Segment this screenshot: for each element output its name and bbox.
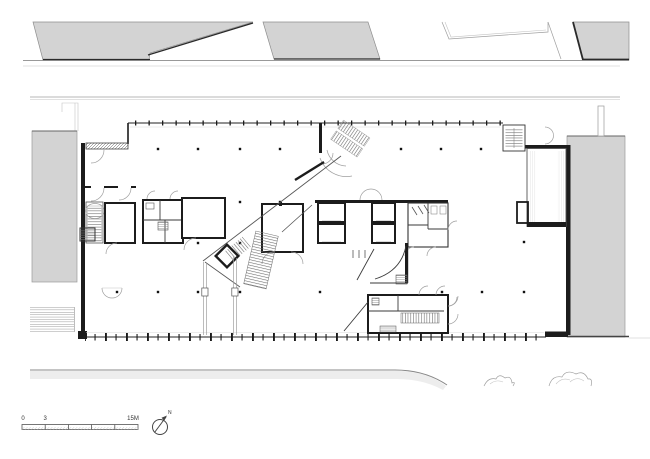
canopy-arc bbox=[102, 288, 122, 298]
scale-bar: 0 3 15M bbox=[21, 416, 139, 430]
adjacent-building-left-mass bbox=[32, 131, 77, 282]
elevator-cell bbox=[372, 224, 395, 243]
floor-plan-drawing: 0 3 15M N bbox=[0, 0, 650, 459]
scale-label-end: 15M bbox=[127, 416, 139, 422]
door-swing bbox=[545, 127, 554, 144]
door-swing bbox=[184, 238, 196, 250]
bush bbox=[549, 372, 592, 386]
shaft-2 bbox=[380, 326, 396, 332]
adjacent-building-right bbox=[567, 106, 650, 338]
core-central bbox=[315, 189, 457, 306]
door-swing bbox=[436, 286, 445, 295]
exterior-steps bbox=[30, 307, 74, 332]
scale-label-mid: 3 bbox=[44, 416, 48, 422]
road-south bbox=[30, 370, 447, 390]
bush-inner bbox=[570, 379, 584, 382]
stair-arc bbox=[327, 150, 346, 166]
wall-spine bbox=[319, 123, 322, 153]
south-facade-columns bbox=[85, 333, 545, 341]
east-wall bbox=[566, 145, 571, 335]
bush-inner bbox=[490, 381, 503, 384]
door-swing bbox=[448, 314, 458, 324]
stair-arc-2 bbox=[320, 158, 352, 177]
terrace-east bbox=[517, 149, 566, 228]
road-band bbox=[30, 371, 446, 390]
floor-plan-sheet: 0 3 15M N bbox=[0, 0, 650, 459]
core-west bbox=[80, 187, 183, 298]
room-west bbox=[105, 203, 135, 243]
stair-edge-lower bbox=[205, 262, 240, 287]
ramp bbox=[202, 256, 238, 335]
wc-block bbox=[405, 203, 457, 306]
door-swing bbox=[291, 252, 303, 264]
door-swing bbox=[119, 188, 131, 200]
stair-northeast bbox=[503, 125, 525, 151]
elevator-cell bbox=[318, 224, 345, 243]
north-facade-mullions bbox=[129, 121, 503, 126]
door-swing bbox=[360, 189, 382, 200]
north-arrow-icon: N bbox=[153, 410, 173, 435]
north-east-wall bbox=[525, 145, 570, 149]
context-building-outline bbox=[442, 22, 561, 59]
adjacent-building-left bbox=[30, 103, 78, 332]
north-label: N bbox=[168, 410, 172, 416]
west-party-wall bbox=[86, 143, 128, 149]
curved-wall-room bbox=[357, 243, 408, 284]
core-west-2 bbox=[143, 191, 183, 243]
door-swing bbox=[448, 296, 458, 306]
stair-north bbox=[331, 120, 370, 157]
stair-atrium bbox=[244, 231, 279, 289]
door-swing bbox=[106, 243, 117, 254]
scale-bar-hatch bbox=[22, 427, 138, 430]
bush-inner bbox=[556, 379, 570, 384]
shaft bbox=[372, 298, 379, 305]
stair-southeast bbox=[401, 313, 439, 323]
diagonal-wall-south bbox=[344, 302, 368, 331]
floor-markers bbox=[353, 250, 365, 258]
room-middle-west bbox=[182, 198, 225, 238]
party-wall-pier bbox=[598, 106, 604, 136]
context-buildings-top bbox=[33, 22, 629, 60]
adjacent-building-right-mass bbox=[567, 136, 625, 337]
elevator-cell bbox=[372, 203, 395, 222]
shaft-west bbox=[80, 228, 95, 241]
door-swing bbox=[91, 188, 104, 201]
elevator-cell bbox=[318, 203, 345, 222]
door-swing bbox=[419, 286, 428, 295]
street-lines bbox=[23, 61, 629, 100]
atrium-diagonal-wall bbox=[295, 162, 324, 180]
landscape-bushes bbox=[484, 372, 592, 386]
context-building-a bbox=[33, 22, 253, 60]
south-east-wall bbox=[545, 332, 568, 338]
scale-label-start: 0 bbox=[21, 416, 25, 422]
context-building-b bbox=[263, 22, 380, 59]
door-swing bbox=[91, 150, 104, 163]
